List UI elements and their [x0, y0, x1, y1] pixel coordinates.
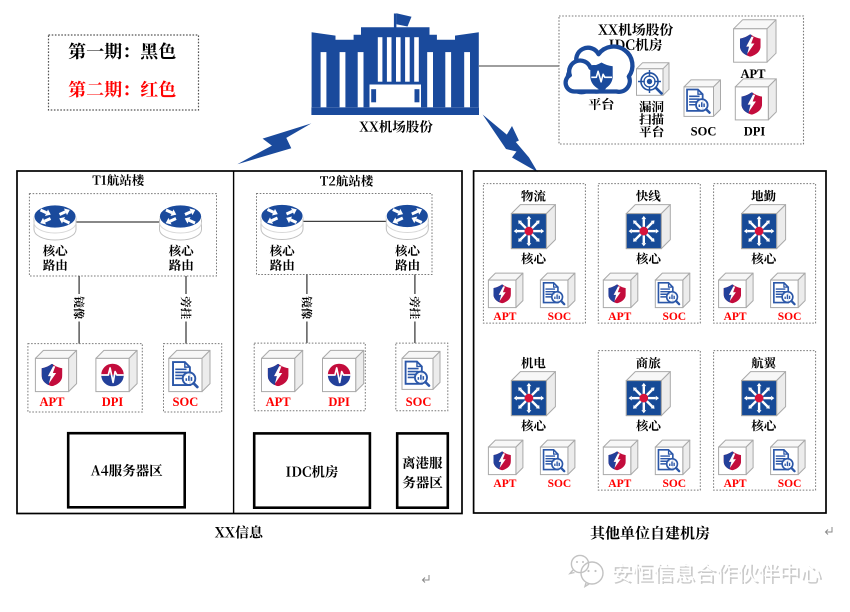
svg-text:APT: APT [608, 478, 631, 490]
svg-text:APT: APT [266, 395, 292, 409]
svg-text:SOC: SOC [173, 395, 199, 409]
svg-text:APT: APT [724, 478, 747, 490]
svg-text:SOC: SOC [778, 478, 802, 490]
svg-text:DPI: DPI [102, 395, 124, 409]
svg-text:SOC: SOC [548, 311, 572, 323]
svg-text:DPI: DPI [328, 395, 350, 409]
svg-text:SOC: SOC [662, 311, 686, 323]
svg-text:APT: APT [608, 311, 631, 323]
svg-text:SOC: SOC [778, 311, 802, 323]
svg-text:APT: APT [493, 311, 516, 323]
svg-text:SOC: SOC [662, 478, 686, 490]
svg-text:SOC: SOC [691, 125, 717, 139]
svg-text:APT: APT [40, 395, 66, 409]
svg-text:DPI: DPI [744, 125, 766, 139]
svg-text:SOC: SOC [548, 478, 572, 490]
svg-text:APT: APT [724, 311, 747, 323]
svg-text:SOC: SOC [406, 395, 432, 409]
svg-text:APT: APT [493, 478, 516, 490]
